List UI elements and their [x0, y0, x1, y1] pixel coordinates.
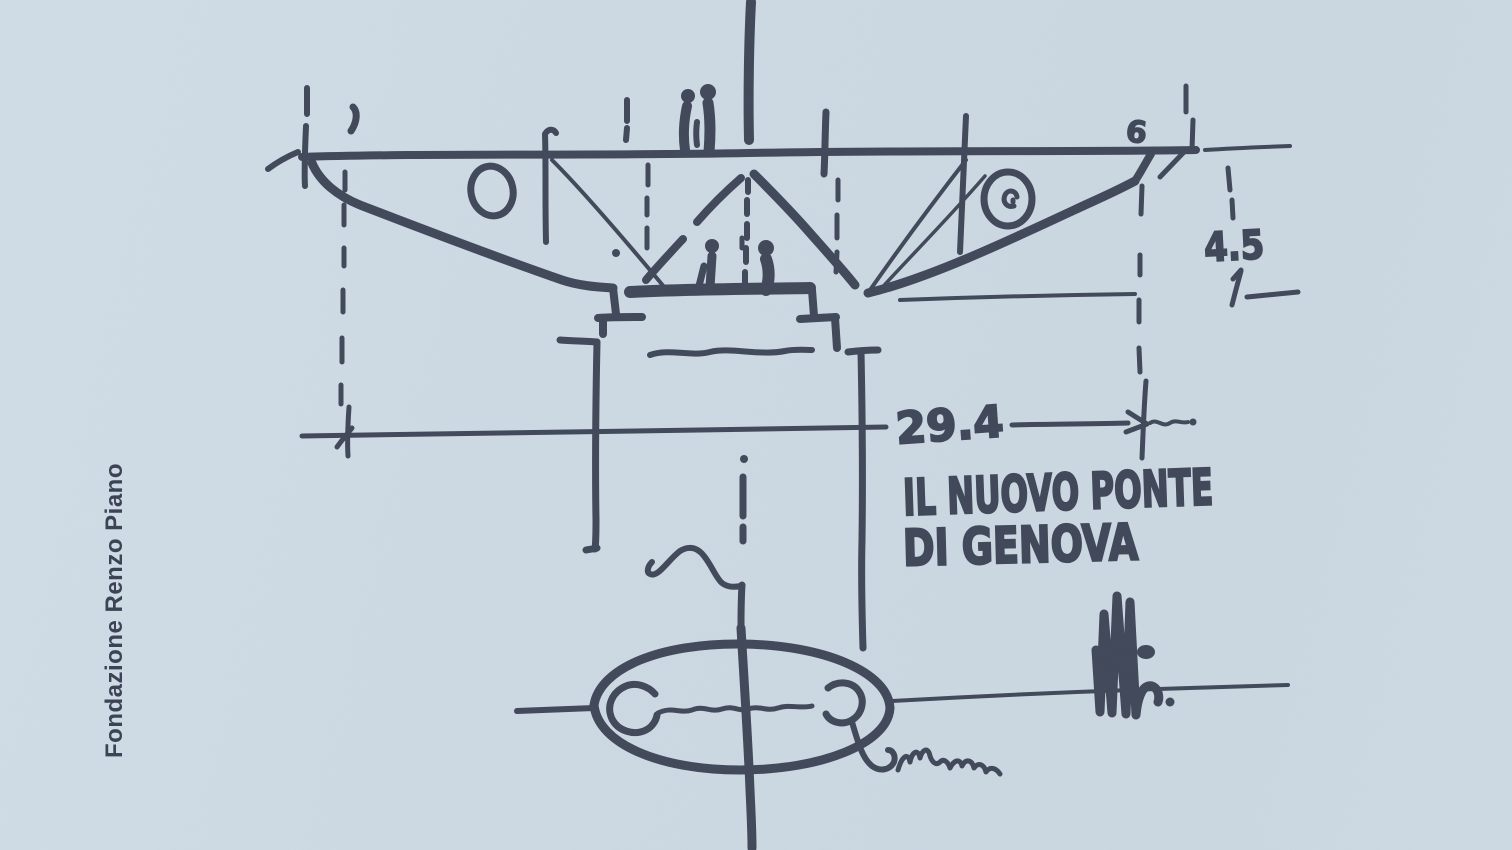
hull-underside-left	[312, 163, 613, 288]
centerline-dashes	[741, 477, 743, 628]
deck-width-dimension-label: 29.4	[894, 396, 1005, 454]
height-dimension-arrow	[1232, 270, 1241, 305]
hull-right-corner	[1135, 154, 1151, 181]
bridge-sketch: IL NUOVO PONTE DI GENOVA 29.4 4.5 6	[0, 0, 1512, 850]
width-dimension-tail-squiggle	[1150, 421, 1188, 424]
height-extension-dashes	[1228, 168, 1233, 218]
construction-dashes-inner-left	[647, 165, 648, 248]
extension-dashed-left	[341, 172, 345, 404]
handwritten-scribble	[898, 750, 1000, 774]
dimension-lines	[302, 165, 1298, 458]
pylon-wavy-midline	[658, 706, 812, 713]
deck-height-dimension-label: 4.5	[1203, 222, 1265, 271]
deck-right-diagonal-tick	[1160, 151, 1185, 177]
hull-right-step	[800, 290, 837, 348]
pylon-axis-left	[517, 708, 594, 711]
centerline-lower-solid	[741, 628, 752, 848]
deck-tick-right-inner	[824, 112, 826, 174]
pylon-inner-circle-left	[610, 684, 657, 732]
credit-fondazione-renzo-piano: Fondazione Renzo Piano	[101, 463, 129, 758]
deck-void-circle-left	[466, 162, 517, 220]
extension-dashed-right	[1139, 186, 1142, 372]
stay-diagonal-right-1	[870, 160, 966, 290]
left-support-serif	[560, 340, 597, 342]
deck-void-circle-right	[984, 172, 1032, 226]
right-support-vertical	[848, 350, 878, 648]
deck-left-stub	[268, 152, 298, 169]
leader-squiggle	[648, 548, 741, 587]
deck-left-end-tick	[305, 88, 307, 186]
pylon-ellipse-plan	[517, 644, 1288, 770]
deck-tick-right-web	[960, 116, 966, 252]
height-reference-segment	[1247, 292, 1298, 297]
reference-mark-6: 6	[1124, 114, 1148, 151]
left-support-vertical	[586, 342, 597, 550]
renzo-piano-signature	[1096, 596, 1175, 715]
center-mast-line	[749, 2, 751, 140]
handwritten-title-line2: DI GENOVA	[902, 513, 1139, 577]
deck-right-thin-extension	[1205, 146, 1290, 150]
pedestrian-figures-top	[681, 84, 716, 152]
deck-top-line	[302, 150, 1196, 157]
deck-tick-left-web	[545, 130, 556, 242]
deck-right-end-ticks	[1186, 86, 1193, 150]
pedestrian-figures-lower	[612, 238, 774, 290]
width-dimension-right-arrow	[1126, 381, 1147, 458]
width-dimension-tail-dot	[1190, 419, 1197, 426]
width-dimension-left-tick	[337, 407, 352, 456]
lower-box-wavy-line	[650, 350, 812, 355]
triangle-center-dashed-axis	[745, 180, 748, 284]
construction-dashes-inner-right	[836, 180, 838, 272]
pylon-inner-circle-right-tail	[852, 722, 895, 769]
pylon-axis-right	[892, 685, 1288, 701]
deck-void-right-spiral	[1004, 191, 1017, 206]
pylon-inner-circle-right	[826, 683, 862, 723]
triangle-brace-left-leg	[646, 178, 741, 280]
height-reference-line	[900, 294, 1135, 300]
stray-comma-mark	[351, 107, 356, 131]
paper-grain-overlay	[0, 0, 1512, 850]
construction-dashes-above-deck	[626, 100, 627, 140]
lower-chord	[630, 288, 810, 292]
